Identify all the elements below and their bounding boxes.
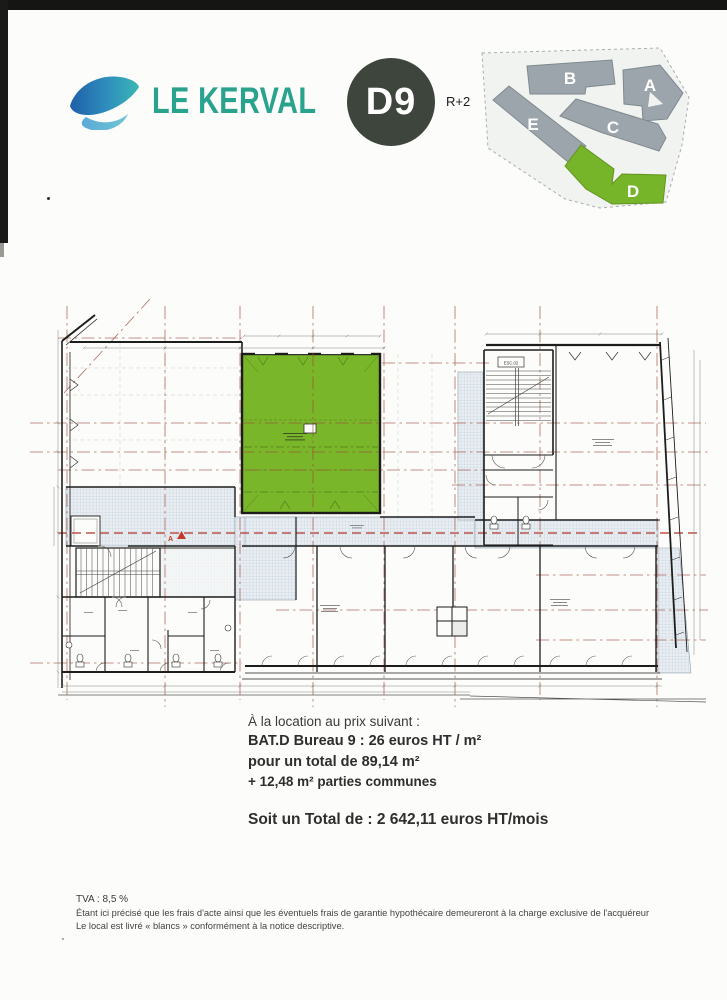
pricing-total: Soit un Total de : 2 642,11 euros HT/moi…	[248, 809, 548, 831]
floor-plan: ESC.02	[28, 296, 712, 708]
pricing-area: pour un total de 89,14 m²	[248, 752, 548, 773]
scan-edge-left-smudge	[0, 243, 4, 257]
pricing-common-area: + 12,48 m² parties communes	[248, 772, 548, 791]
building-d-label: D	[627, 182, 639, 201]
staircase-upper	[486, 368, 551, 426]
staircase-lower	[76, 548, 160, 597]
unit-d9-highlight	[242, 352, 380, 514]
section-marker-label: A	[168, 536, 173, 543]
duct-shaft	[437, 607, 467, 636]
building-c-label: C	[607, 118, 619, 137]
elevator-shaft	[71, 516, 100, 546]
scan-speck	[62, 938, 64, 940]
brochure-page: { "header": { "logo_text": "LE KERVAL", …	[0, 0, 727, 1000]
logo-leaf-icon	[66, 72, 140, 130]
scan-edge-top	[0, 0, 727, 10]
stair-label: ESC.02	[504, 361, 519, 366]
building-a-label: A	[644, 76, 656, 95]
footer-notes: TVA : 8,5 % Étant ici précisé que les fr…	[76, 894, 649, 934]
pricing-rate: BAT.D Bureau 9 : 26 euros HT / m²	[248, 731, 548, 752]
footer-legal-line2: Le local est livré « blancs » conforméme…	[76, 920, 649, 933]
footer-legal-line1: Étant ici précisé que les frais d'acte a…	[76, 907, 649, 920]
logo-text: LE KERVAL	[152, 80, 316, 122]
site-map: B A E C D	[470, 42, 710, 217]
building-b-label: B	[564, 69, 576, 88]
building-e-label: E	[527, 115, 538, 134]
scan-edge-left	[0, 0, 8, 243]
logo: LE KERVAL	[66, 72, 363, 130]
footer-tva: TVA : 8,5 %	[76, 894, 649, 905]
unit-badge: D9	[347, 58, 435, 146]
pricing-intro: À la location au prix suivant :	[248, 712, 548, 731]
scan-speck	[47, 197, 50, 200]
floor-level-label: R+2	[446, 94, 470, 109]
unit-badge-label: D9	[366, 81, 417, 124]
pricing-block: À la location au prix suivant : BAT.D Bu…	[248, 712, 548, 831]
ground-line	[58, 695, 706, 702]
